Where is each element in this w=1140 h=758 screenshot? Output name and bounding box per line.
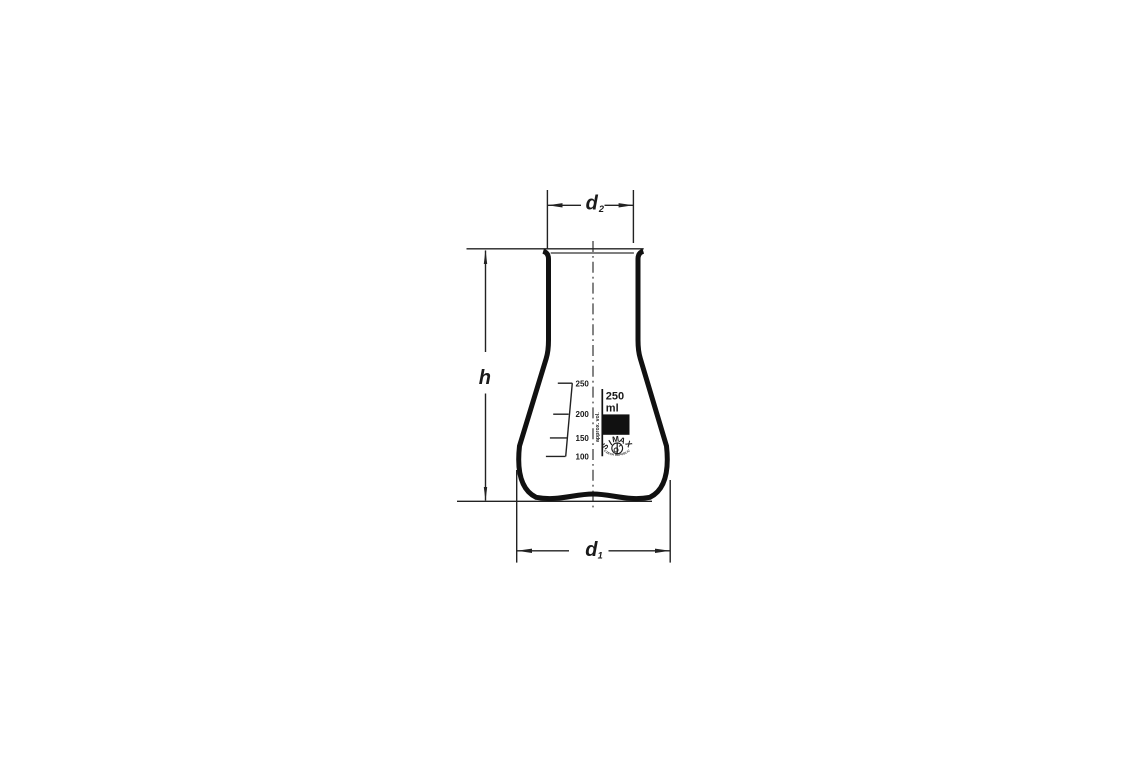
svg-text:d: d (586, 193, 599, 215)
svg-text:250: 250 (576, 380, 590, 389)
svg-text:200: 200 (576, 410, 590, 419)
svg-text:250: 250 (606, 391, 624, 403)
svg-text:h: h (479, 367, 491, 389)
svg-text:approx. vol.: approx. vol. (595, 412, 601, 442)
svg-text:100: 100 (576, 452, 590, 461)
svg-text:150: 150 (576, 434, 590, 443)
svg-text:2: 2 (598, 204, 605, 214)
svg-text:ml: ml (606, 402, 619, 414)
svg-text:d: d (585, 539, 598, 561)
svg-text:1: 1 (598, 551, 603, 561)
